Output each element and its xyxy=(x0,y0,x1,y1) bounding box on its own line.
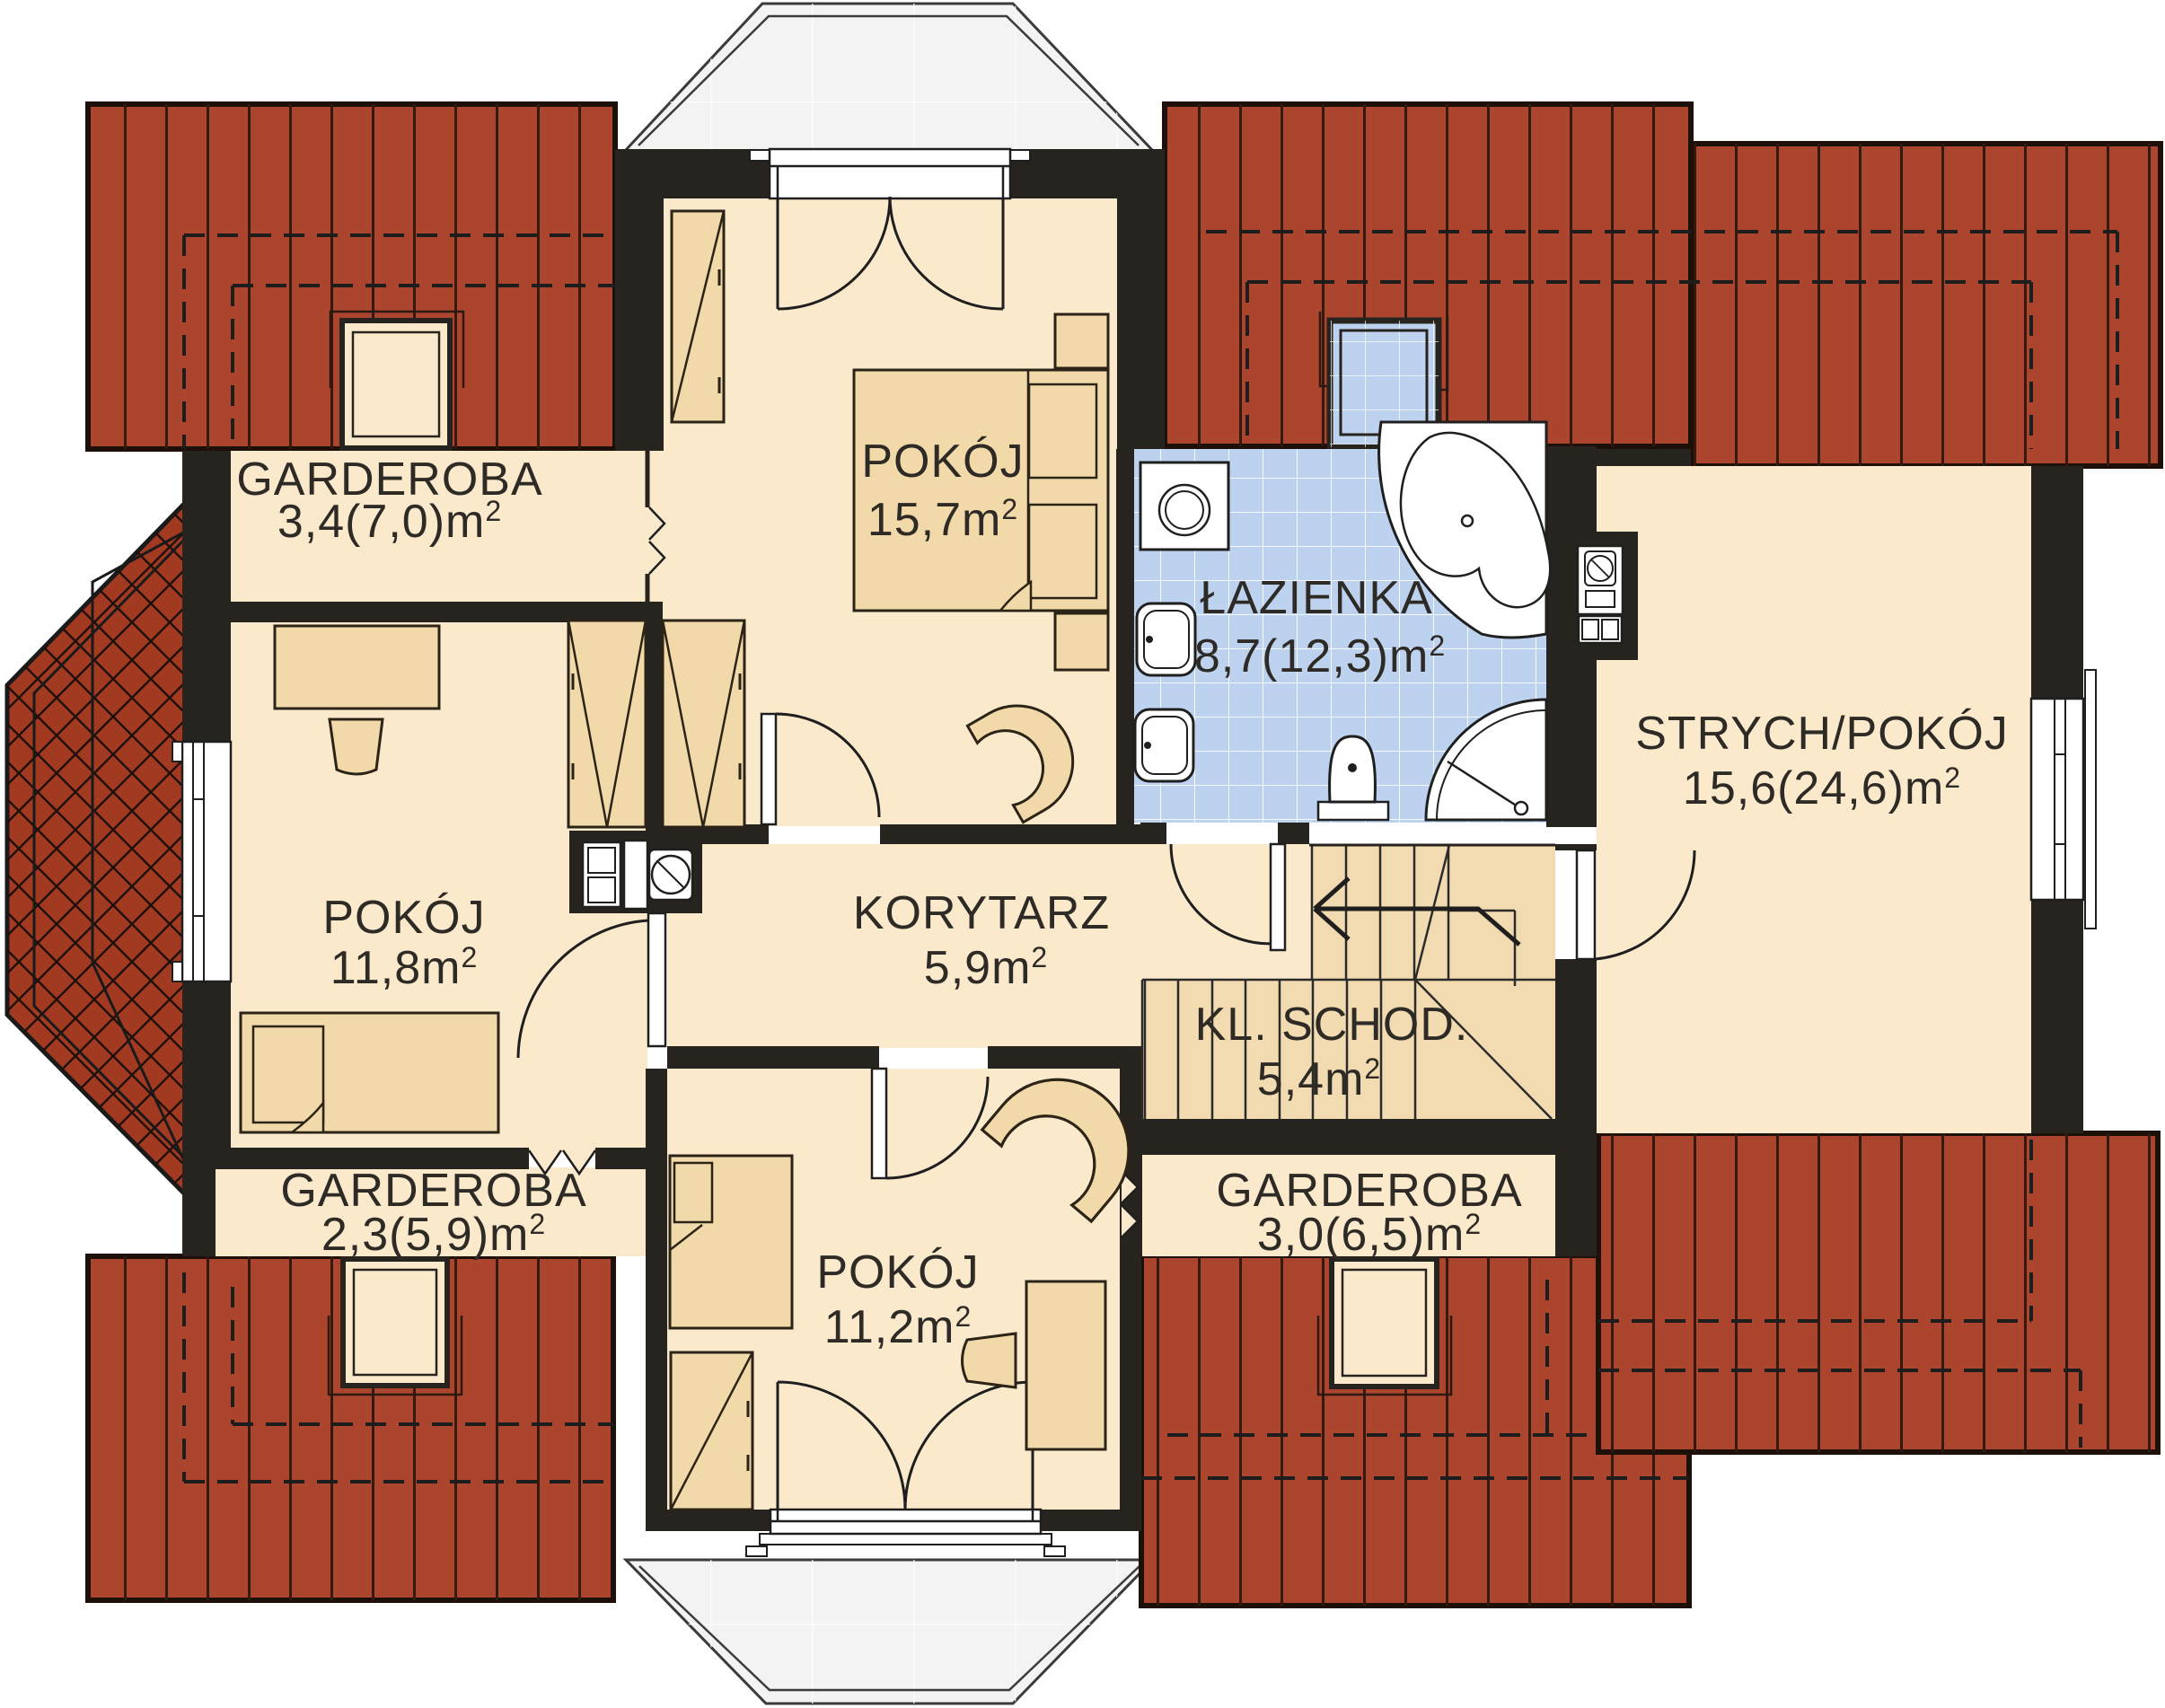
svg-text:15,6(24,6)m2: 15,6(24,6)m2 xyxy=(1683,762,1961,814)
svg-text:STRYCH/POKÓJ: STRYCH/POKÓJ xyxy=(1635,708,2009,760)
svg-text:3,4(7,0)m2: 3,4(7,0)m2 xyxy=(277,495,502,548)
svg-text:POKÓJ: POKÓJ xyxy=(322,892,485,944)
svg-text:KL. SCHOD.: KL. SCHOD. xyxy=(1195,999,1469,1051)
svg-text:15,7m2: 15,7m2 xyxy=(867,493,1018,546)
svg-text:11,2m2: 11,2m2 xyxy=(824,1300,972,1353)
svg-text:ŁAZIENKA: ŁAZIENKA xyxy=(1200,572,1432,624)
svg-text:5,9m2: 5,9m2 xyxy=(924,941,1048,994)
svg-text:8,7(12,3)m2: 8,7(12,3)m2 xyxy=(1194,629,1446,682)
svg-text:3,0(6,5)m2: 3,0(6,5)m2 xyxy=(1257,1208,1482,1261)
svg-text:5,4m2: 5,4m2 xyxy=(1257,1052,1381,1105)
svg-text:POKÓJ: POKÓJ xyxy=(816,1246,979,1299)
svg-text:POKÓJ: POKÓJ xyxy=(861,436,1024,488)
svg-text:2,3(5,9)m2: 2,3(5,9)m2 xyxy=(321,1208,546,1261)
svg-text:KORYTARZ: KORYTARZ xyxy=(853,887,1110,939)
svg-text:11,8m2: 11,8m2 xyxy=(330,941,478,994)
